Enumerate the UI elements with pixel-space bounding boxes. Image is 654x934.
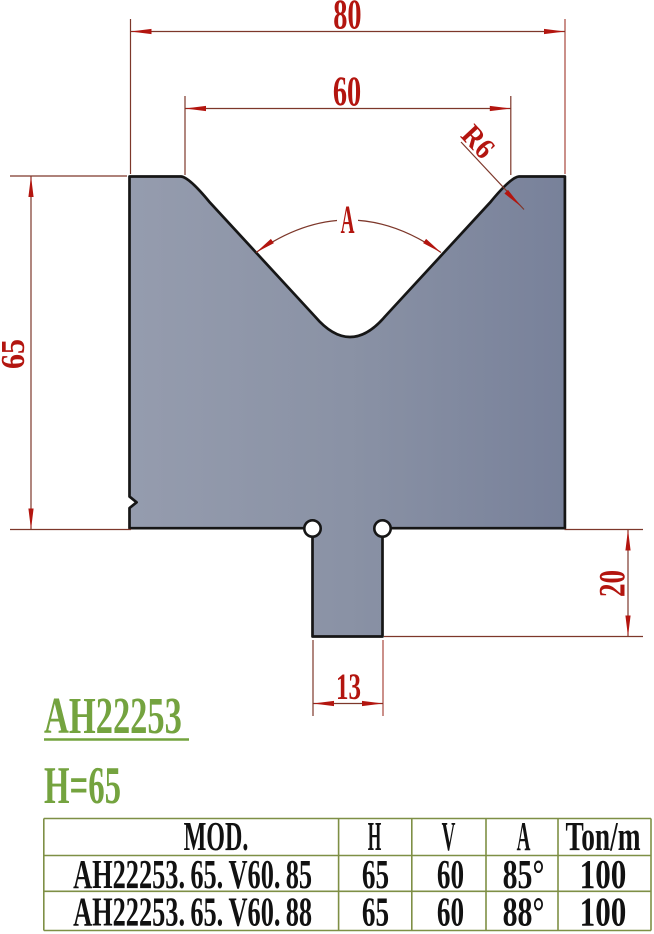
svg-text:60: 60 <box>437 889 464 934</box>
svg-text:65: 65 <box>0 339 31 369</box>
svg-text:A: A <box>341 197 355 242</box>
svg-text:AH22253. 65. V60. 88: AH22253. 65. V60. 88 <box>73 888 312 934</box>
svg-text:H=65: H=65 <box>44 756 121 815</box>
svg-text:60: 60 <box>333 68 361 115</box>
svg-text:88°: 88° <box>503 889 545 934</box>
svg-text:80: 80 <box>333 0 361 38</box>
svg-text:20: 20 <box>593 570 634 597</box>
svg-text:R6: R6 <box>454 119 500 165</box>
svg-text:AH22253: AH22253 <box>44 687 182 745</box>
svg-text:65: 65 <box>362 889 389 934</box>
svg-text:100: 100 <box>580 888 627 934</box>
svg-text:13: 13 <box>336 666 361 707</box>
